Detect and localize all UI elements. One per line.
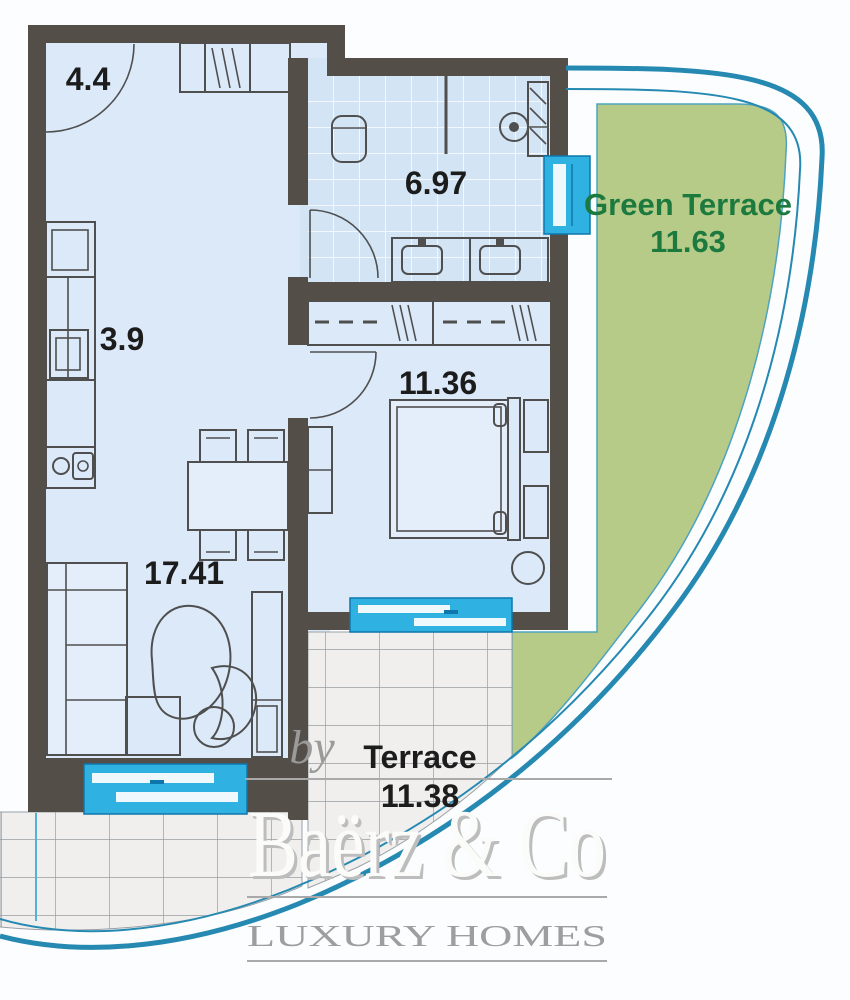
hall-area-label: 4.4 xyxy=(66,61,111,97)
living-slider-window xyxy=(84,764,247,814)
terrace-label: Terrace xyxy=(363,739,476,775)
bathroom-area-label: 6.97 xyxy=(405,165,467,201)
living-area-label: 17.41 xyxy=(144,555,224,591)
by-label: by xyxy=(289,721,335,774)
kitchen-area-label: 3.9 xyxy=(100,321,144,357)
floor-plan-page: by Baërz & Co Baërz & Co LUXURY HOMES 4.… xyxy=(0,0,850,1000)
bed-symbol xyxy=(390,398,520,540)
green-terrace-label: Green Terrace xyxy=(584,187,792,222)
bedroom-slider-window xyxy=(350,598,512,632)
floor-plan-drawing: by Baërz & Co Baërz & Co LUXURY HOMES 4.… xyxy=(0,0,850,1000)
green-terrace-area-label: 11.63 xyxy=(650,224,726,259)
bedroom-area-label: 11.36 xyxy=(399,365,477,401)
terrace-area-label: 11.38 xyxy=(381,778,459,814)
brand-tagline: LUXURY HOMES xyxy=(247,918,607,953)
